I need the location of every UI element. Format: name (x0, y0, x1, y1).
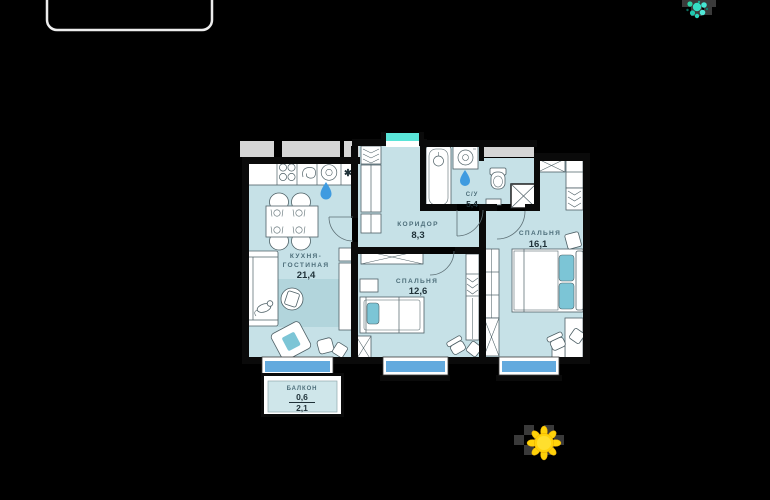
dining-table (266, 206, 318, 237)
svg-text:СПАЛЬНЯ: СПАЛЬНЯ (519, 230, 561, 237)
headboard (576, 251, 583, 310)
balcony: БАЛКОН 0,6 2,1 (261, 373, 344, 417)
floorplan-scene: ✱ (0, 0, 770, 500)
shelves-zigzag (566, 188, 583, 210)
single-bed (360, 297, 424, 333)
svg-text:21,4: 21,4 (297, 270, 316, 281)
tv-cabinet-top (339, 248, 352, 261)
floorplan: ✱ (240, 132, 590, 417)
window-sill (496, 375, 562, 381)
window-kitchen (262, 357, 333, 375)
bathtub-icon (426, 146, 451, 208)
window-bedroom-large (499, 357, 559, 375)
svg-text:КОРИДОР: КОРИДОР (397, 221, 439, 228)
wardrobe-column (484, 249, 499, 318)
coffee-table (281, 288, 303, 310)
pillow (559, 283, 574, 309)
svg-text:КУХНЯ-: КУХНЯ- (290, 253, 322, 260)
toilet-icon (490, 168, 506, 189)
svg-text:12,6: 12,6 (409, 286, 428, 297)
svg-text:8,3: 8,3 (411, 230, 424, 241)
tv-cabinet (339, 263, 352, 330)
svg-text:С/У: С/У (466, 192, 478, 198)
sofa (245, 251, 278, 326)
double-bed (512, 249, 583, 312)
windows (262, 357, 559, 375)
label-bathroom: С/У 5,4 (466, 192, 478, 209)
window-bedroom-small (383, 357, 448, 375)
washing-machine-icon (453, 146, 478, 169)
pillow (367, 303, 379, 324)
crossed-cabinet (356, 336, 371, 360)
window-sill (380, 375, 450, 381)
corridor-closet (361, 146, 381, 233)
svg-text:16,1: 16,1 (529, 239, 548, 250)
svg-text:5,4: 5,4 (466, 199, 478, 209)
screenshot-canvas: ✱ (0, 0, 770, 500)
svg-text:ГОСТИНАЯ: ГОСТИНАЯ (283, 262, 330, 269)
dining-set (266, 193, 318, 250)
wardrobe-column (466, 254, 479, 340)
balcony-area-full: 2,1 (296, 403, 308, 413)
svg-text:СПАЛЬНЯ: СПАЛЬНЯ (396, 278, 438, 285)
entrance-door (386, 133, 419, 147)
nightstand (360, 279, 378, 292)
crossed-cabinet (484, 318, 499, 356)
balcony-area-coef: 0,6 (296, 392, 308, 402)
pillow (559, 255, 574, 281)
